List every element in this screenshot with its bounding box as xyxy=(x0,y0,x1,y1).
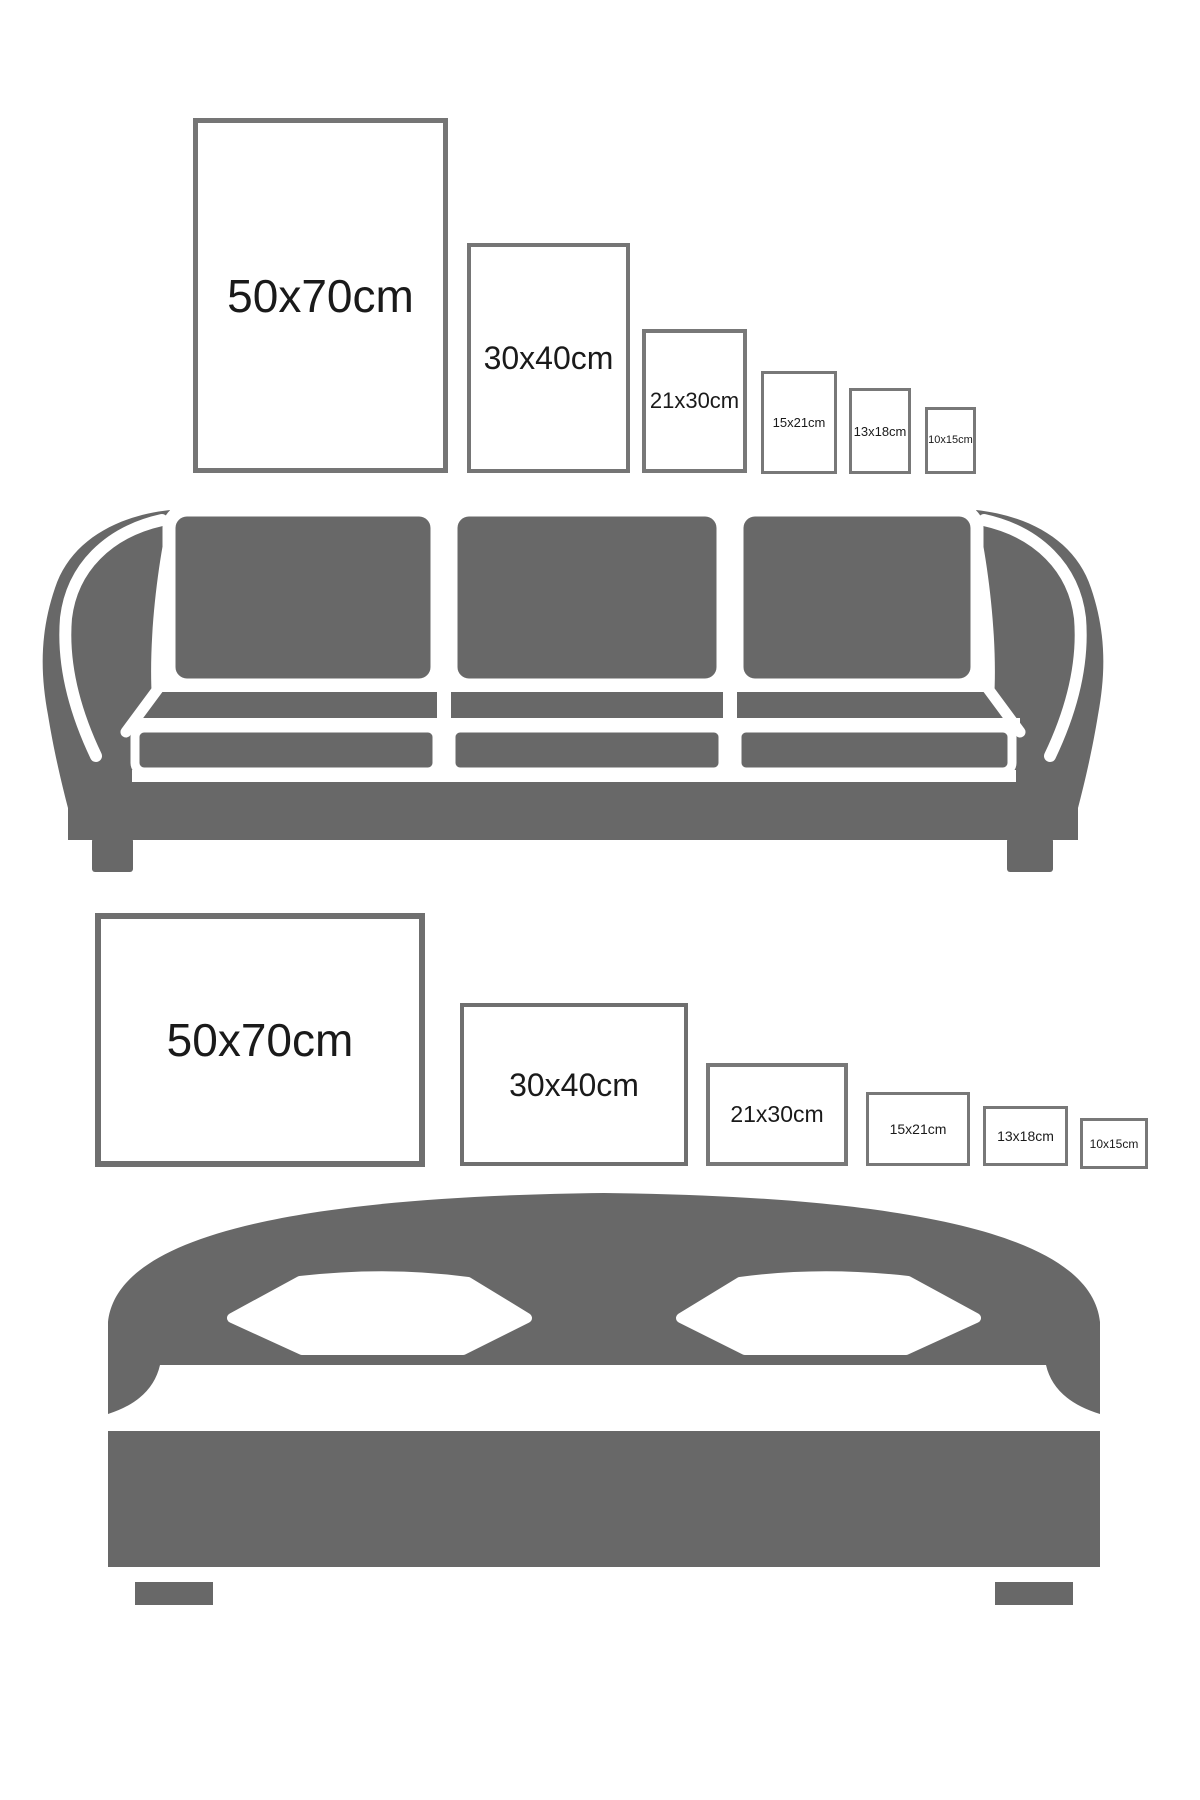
bed-icon xyxy=(108,1193,1100,1605)
size-label: 10x15cm xyxy=(928,435,973,446)
size-label: 21x30cm xyxy=(730,1103,823,1126)
size-label: 15x21cm xyxy=(890,1122,947,1136)
size-label: 30x40cm xyxy=(484,342,614,374)
size-label: 30x40cm xyxy=(509,1069,639,1101)
size-label: 50x70cm xyxy=(167,1017,354,1063)
size-frame-13x18-portrait: 13x18cm xyxy=(849,388,911,474)
size-frame-13x18-landscape: 13x18cm xyxy=(983,1106,1068,1166)
size-label: 15x21cm xyxy=(773,416,826,429)
size-frame-30x40-landscape: 30x40cm xyxy=(460,1003,688,1166)
size-label: 10x15cm xyxy=(1090,1138,1139,1150)
size-frame-50x70-landscape: 50x70cm xyxy=(95,913,425,1167)
size-label: 21x30cm xyxy=(650,390,739,412)
size-frame-21x30-portrait: 21x30cm xyxy=(642,329,747,473)
size-frame-30x40-portrait: 30x40cm xyxy=(467,243,630,473)
size-frame-10x15-landscape: 10x15cm xyxy=(1080,1118,1148,1169)
size-label: 13x18cm xyxy=(854,425,907,438)
size-frame-50x70-portrait: 50x70cm xyxy=(193,118,448,473)
size-frame-21x30-landscape: 21x30cm xyxy=(706,1063,848,1166)
size-frame-15x21-portrait: 15x21cm xyxy=(761,371,837,474)
size-guide-canvas: 50x70cm 30x40cm 21x30cm 15x21cm 13x18cm … xyxy=(0,0,1200,1800)
size-frame-10x15-portrait: 10x15cm xyxy=(925,407,976,474)
sofa-icon xyxy=(43,510,1104,872)
size-label: 13x18cm xyxy=(997,1129,1054,1143)
size-label: 50x70cm xyxy=(227,273,414,319)
size-frame-15x21-landscape: 15x21cm xyxy=(866,1092,970,1166)
